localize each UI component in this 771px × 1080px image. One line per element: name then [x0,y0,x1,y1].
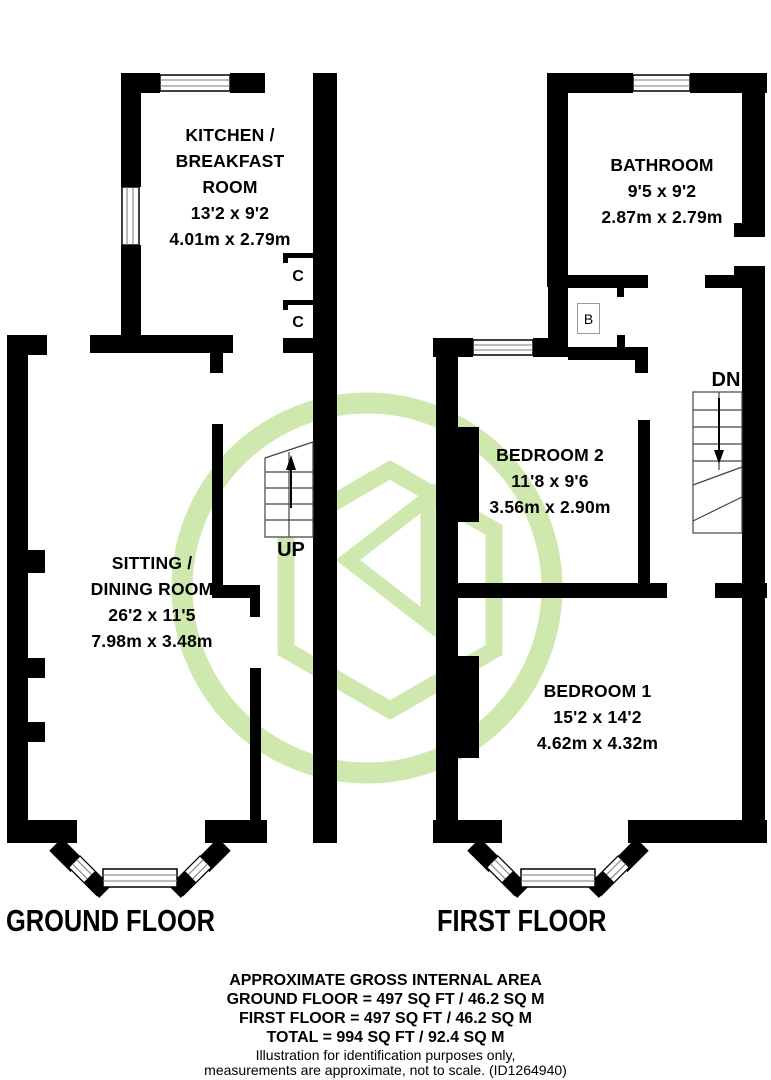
boiler-label: B [584,311,593,327]
chimney-breast [458,656,479,758]
footer-total-area: TOTAL = 994 SQ FT / 92.4 SQ M [0,1028,771,1047]
room-size-m: 4.62m x 4.32m [480,730,715,756]
bathroom-label: BATHROOM 9'5 x 9'2 2.87m x 2.79m [548,152,771,230]
room-size-m: 3.56m x 2.90m [440,494,660,520]
wall [705,275,745,288]
wall [433,338,473,357]
wall [90,335,233,353]
footer-first-area: FIRST FLOOR = 497 SQ FT / 46.2 SQ M [0,1009,771,1028]
closet-label-2: C [288,315,308,331]
bedroom2-label: BEDROOM 2 11'8 x 9'6 3.56m x 2.90m [440,442,660,520]
wall [7,820,77,843]
watermark-triangle [348,498,428,622]
room-size-ft: 13'2 x 9'2 [118,200,342,226]
room-size-ft: 11'8 x 9'6 [440,468,660,494]
kitchen-top-window [160,75,230,91]
room-name-line: SITTING / [38,550,266,576]
bathroom-window [633,75,690,91]
wall [7,335,47,355]
footer-disclaimer-2: measurements are approximate, not to sca… [0,1063,771,1077]
wall [436,583,667,598]
room-name-line: DINING ROOM [38,576,266,602]
wall [715,583,767,598]
boiler-box: B [577,303,600,334]
wall [617,288,624,297]
room-size-ft: 9'5 x 9'2 [548,178,771,204]
room-name-line: BREAKFAST [118,148,342,174]
footer-disclaimer-1: Illustration for identification purposes… [0,1048,771,1062]
bedroom1-label: BEDROOM 1 15'2 x 14'2 4.62m x 4.32m [480,678,715,756]
up-label: UP [271,539,311,562]
chimney-breast [28,722,45,742]
room-name-line: BEDROOM 1 [480,678,715,704]
bay-window-ground [49,838,230,898]
footer-area-title: APPROXIMATE GROSS INTERNAL AREA [0,971,771,990]
wall [313,820,337,843]
wall [550,275,648,288]
first-floor-title: FIRST FLOOR [437,903,606,939]
closet-label-1: C [288,269,308,285]
bay-window-first [467,820,767,898]
bedroom2-window [473,340,533,355]
room-name-line: KITCHEN / [118,122,342,148]
sitting-room-label: SITTING / DINING ROOM 26'2 x 11'5 7.98m … [38,550,266,654]
wall [250,668,261,820]
kitchen-label: KITCHEN / BREAKFAST ROOM 13'2 x 9'2 4.01… [118,122,342,252]
room-name-line: BEDROOM 2 [440,442,660,468]
wall [205,820,267,843]
dn-label: DN [706,369,746,392]
wall [7,355,28,820]
wall [635,347,648,373]
floorplan-page: KITCHEN / BREAKFAST ROOM 13'2 x 9'2 4.01… [0,0,771,1080]
room-size-m: 4.01m x 2.79m [118,226,342,252]
room-name-line: BATHROOM [548,152,771,178]
up-stairs [265,442,313,537]
chimney-breast [28,658,45,678]
footer-ground-area: GROUND FLOOR = 497 SQ FT / 46.2 SQ M [0,990,771,1009]
room-name-line: ROOM [118,174,342,200]
room-size-ft: 26'2 x 11'5 [38,602,266,628]
room-size-m: 7.98m x 3.48m [38,628,266,654]
wall [433,820,502,843]
wall [742,266,765,820]
wall [617,335,625,347]
room-size-m: 2.87m x 2.79m [548,204,771,230]
ground-floor-title: GROUND FLOOR [6,903,215,939]
wall [533,338,568,357]
room-size-ft: 15'2 x 14'2 [480,704,715,730]
wall [210,353,223,373]
dn-stairs [693,392,742,533]
wall [230,73,265,93]
